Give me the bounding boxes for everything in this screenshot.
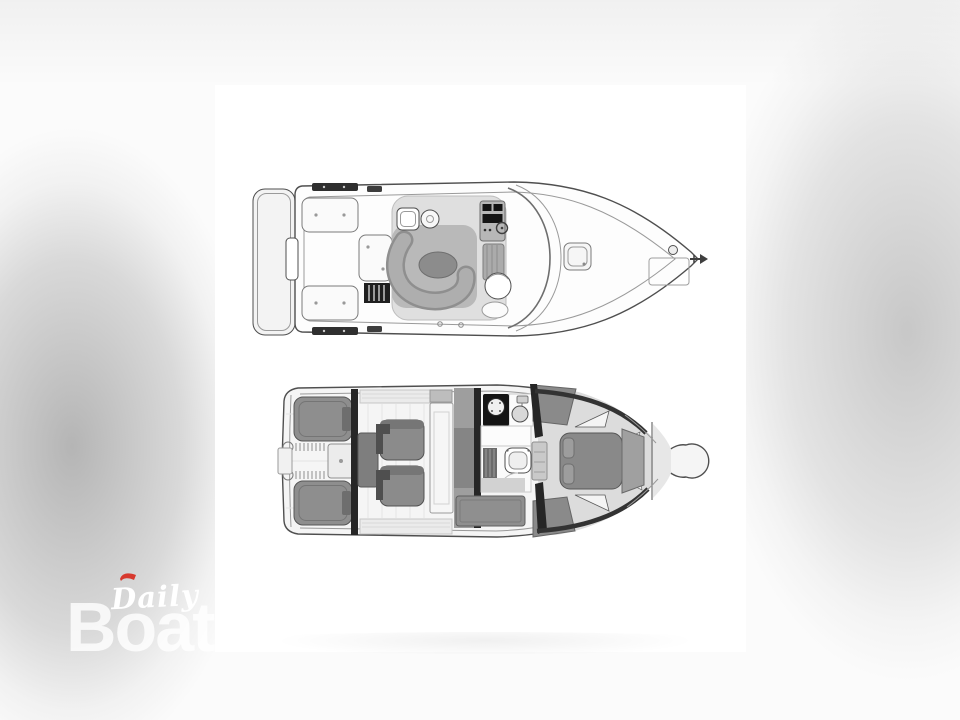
head-compartment [481,446,531,492]
generator [328,444,354,478]
v-berth-cabin [530,384,671,537]
oval-table [419,252,457,278]
club-chair-fwd [376,420,424,460]
screenshot-canvas: Daily Boats [0,0,960,720]
galley-head [454,388,533,528]
bed-footboard [622,429,644,493]
transom-door [286,238,298,280]
companionway-steps [532,442,547,480]
engine-room-bulkhead [351,389,358,535]
photo-panel [215,85,746,652]
stern-locker [278,448,292,474]
engine-port [294,397,352,441]
storage-cabinet [456,496,525,526]
stove-burner [483,394,509,426]
backdrop-bottom-smudge [205,632,765,654]
galley-counter [481,426,531,446]
lower-deck-plan [272,380,712,544]
head-toilet [505,448,531,473]
club-chair-aft [376,466,424,506]
flybridge-ladder [364,283,390,303]
grill [421,210,439,228]
wet-bar-sink [397,208,419,230]
engine-starboard [294,481,352,525]
foredeck-hatch [564,243,591,270]
backdrop-top-haze [0,0,960,86]
sideboard-table [430,390,453,513]
blurred-backdrop-right [720,0,960,720]
brand-ghost-text: Boats [66,592,250,662]
main-deck-plan [246,178,708,340]
helm-console [480,201,505,241]
salon-cabinet [358,433,378,487]
windlass [669,246,678,255]
v-berth-island-bed [560,433,622,489]
